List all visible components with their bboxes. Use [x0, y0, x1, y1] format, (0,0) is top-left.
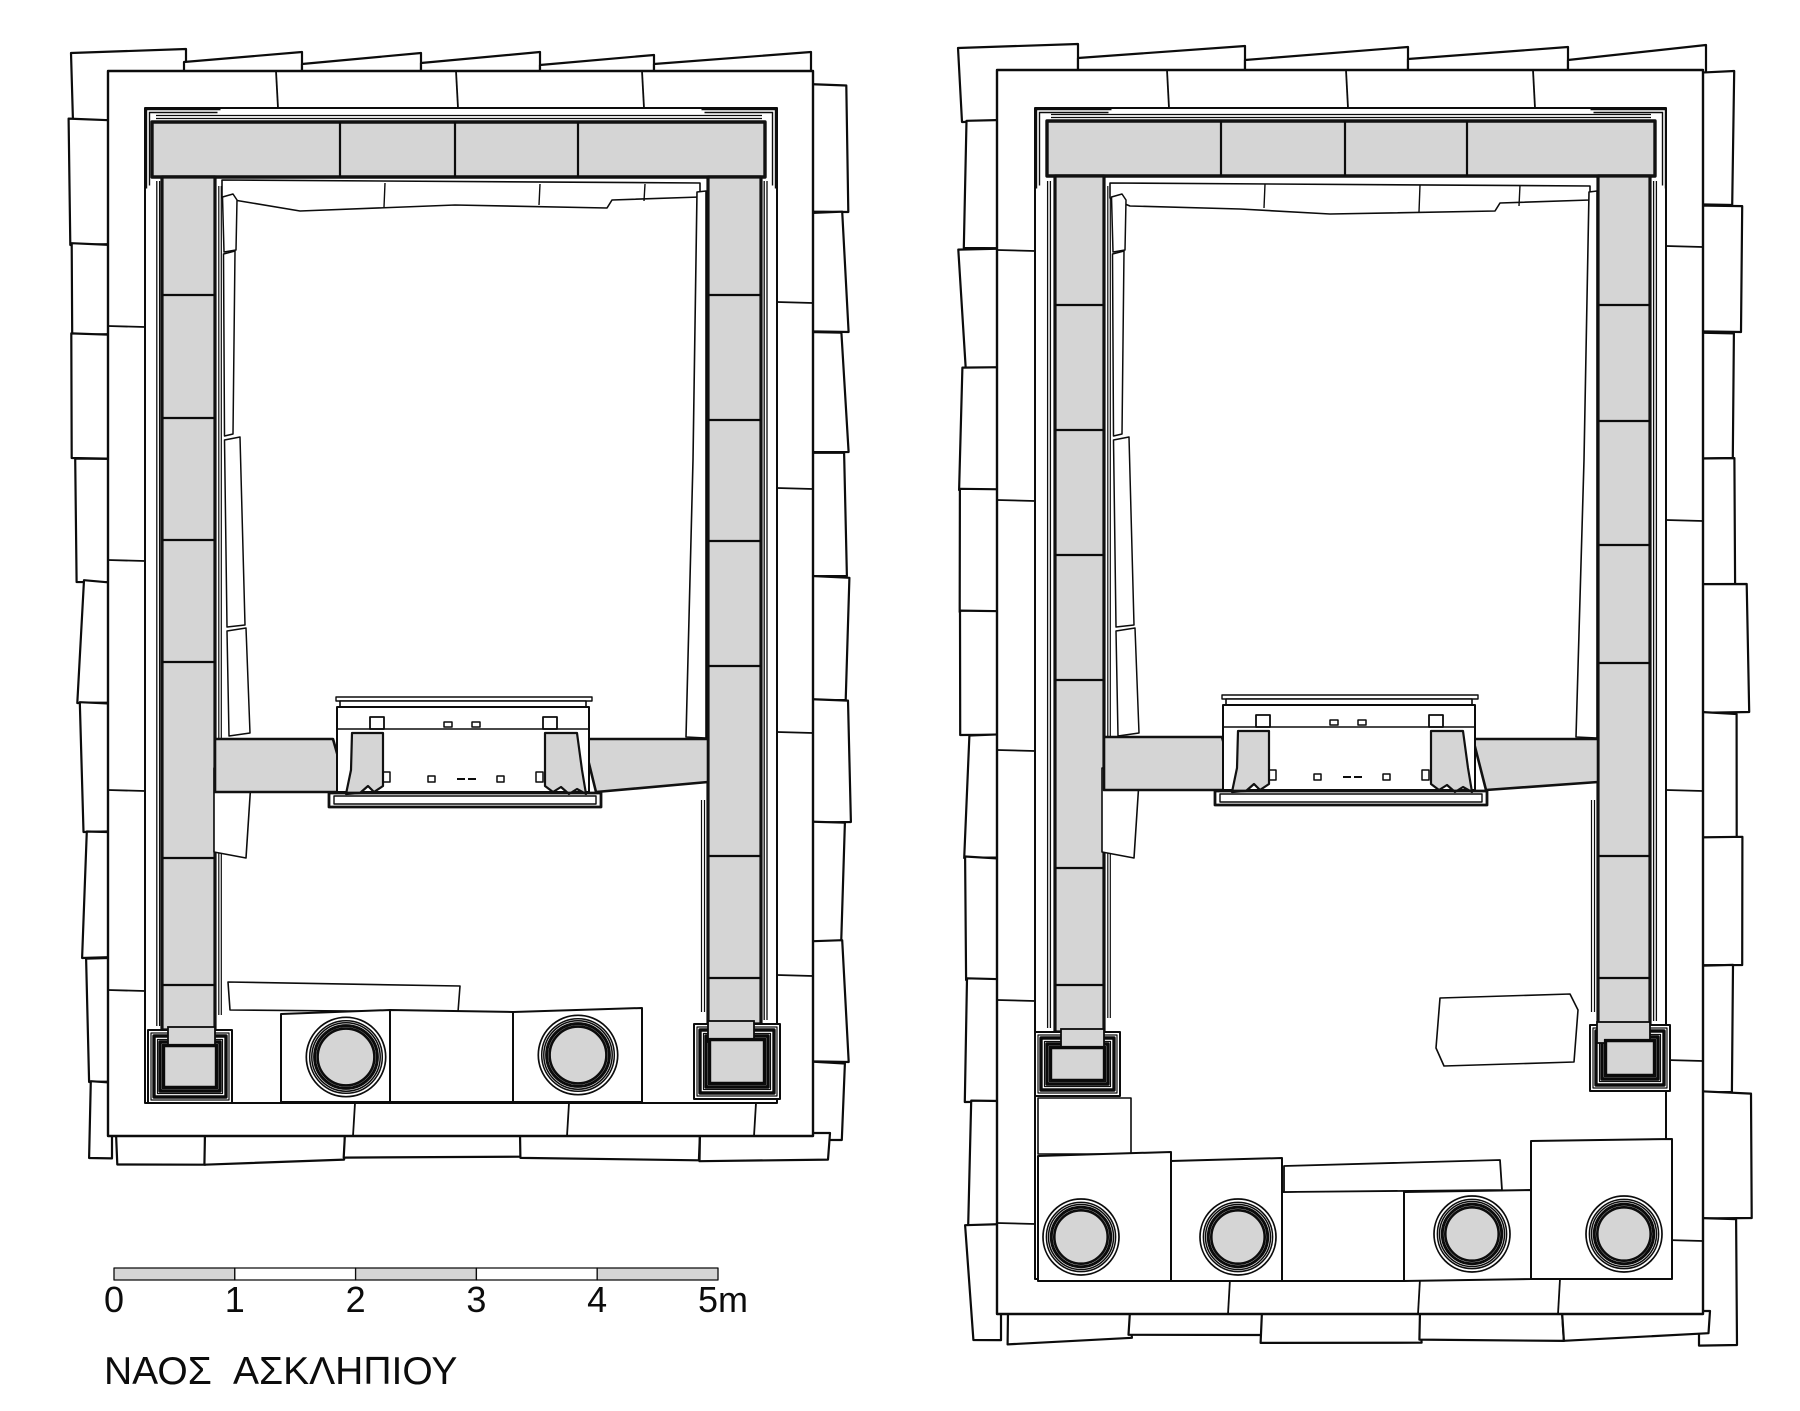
- svg-text:5m: 5m: [698, 1279, 748, 1320]
- svg-text:1: 1: [225, 1279, 245, 1320]
- svg-text:3: 3: [466, 1279, 486, 1320]
- svg-text:2: 2: [346, 1279, 366, 1320]
- svg-text:ΝΑΟΣ: ΝΑΟΣ: [104, 1350, 212, 1393]
- svg-text:ΑΣΚΛΗΠΙΟΥ: ΑΣΚΛΗΠΙΟΥ: [233, 1350, 457, 1393]
- svg-text:0: 0: [104, 1279, 124, 1320]
- svg-text:4: 4: [587, 1279, 607, 1320]
